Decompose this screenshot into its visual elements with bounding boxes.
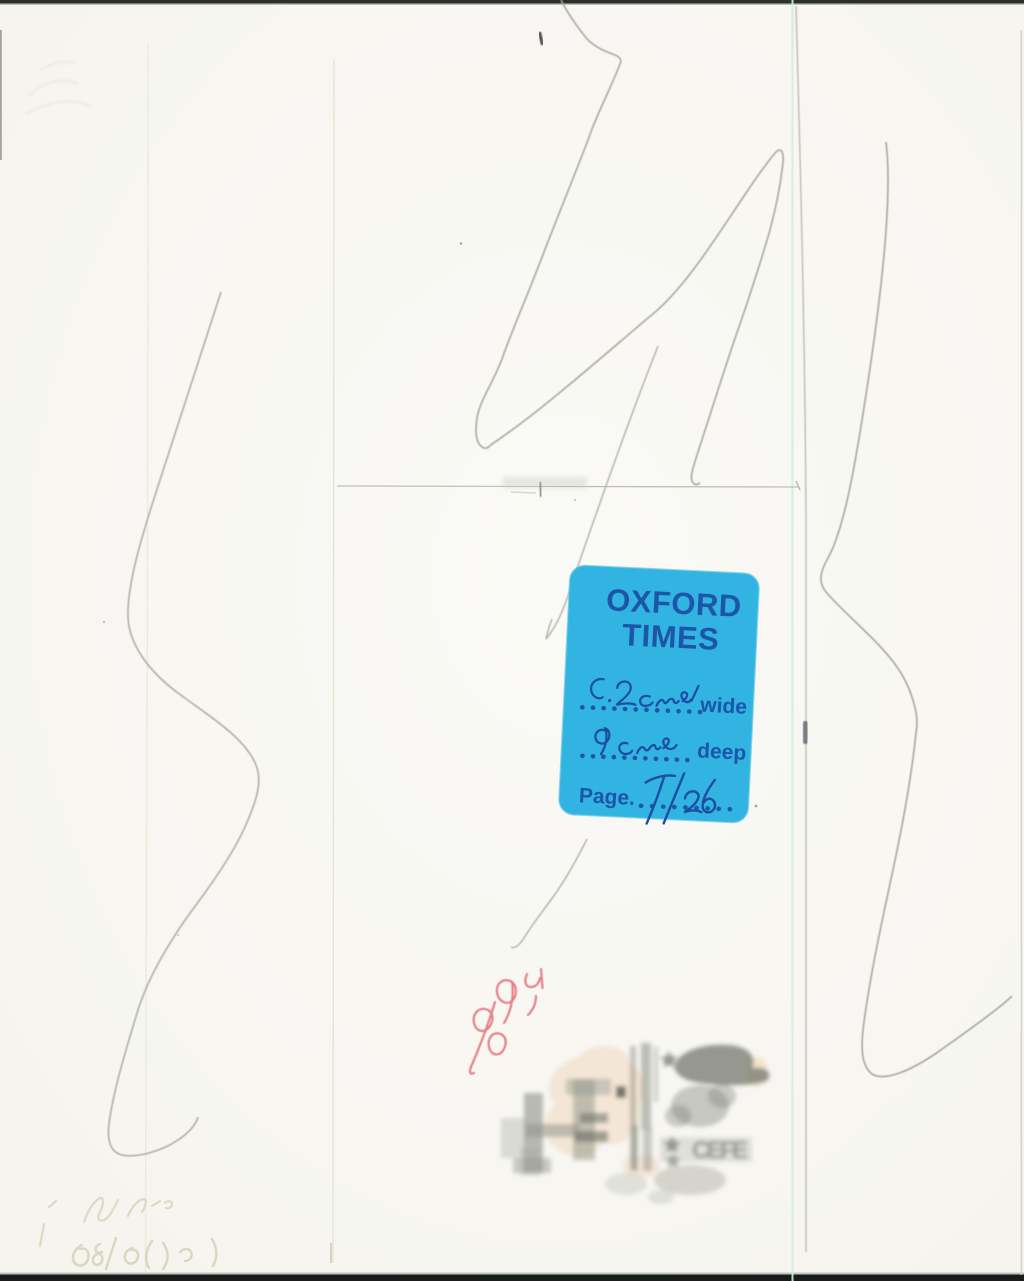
svg-text:deep: deep <box>697 739 747 764</box>
svg-text:Page.: Page. <box>578 784 635 810</box>
svg-text:TIMES: TIMES <box>621 617 720 657</box>
svg-text:CEFE: CEFE <box>692 1137 748 1164</box>
svg-text:wide: wide <box>699 693 748 718</box>
